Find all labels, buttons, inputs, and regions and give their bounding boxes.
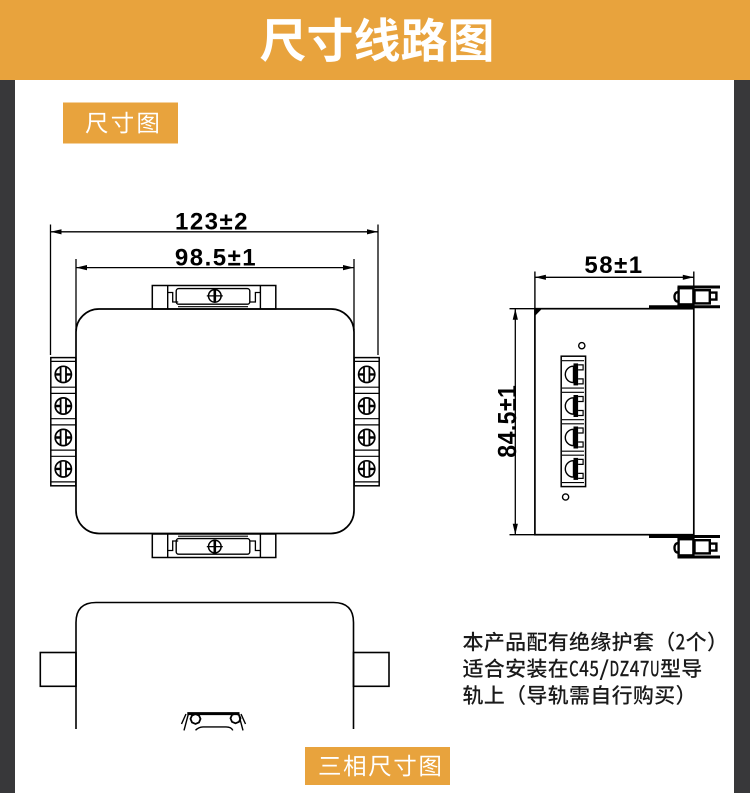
svg-text:84.5±1: 84.5±1: [494, 385, 522, 458]
svg-text:58±1: 58±1: [584, 252, 643, 279]
